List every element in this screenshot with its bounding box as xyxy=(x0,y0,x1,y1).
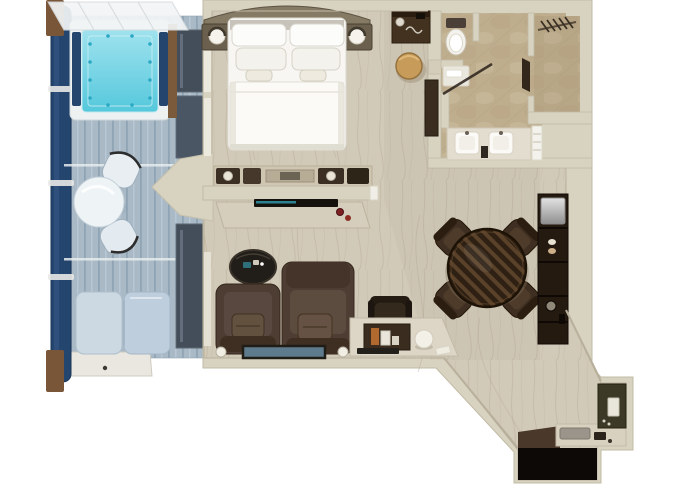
coffee-table-top xyxy=(230,250,276,284)
armchair-headrest xyxy=(286,262,350,288)
oval-coffee-table xyxy=(230,250,276,284)
table-decor-box xyxy=(243,262,251,268)
desk-blotter xyxy=(357,348,399,354)
minibar xyxy=(541,198,565,224)
window-frame xyxy=(180,34,183,88)
glassware xyxy=(548,248,556,254)
pillow xyxy=(236,48,286,70)
armchair-right xyxy=(282,262,354,354)
panel-detail xyxy=(608,423,611,426)
duvet-hem xyxy=(230,144,344,150)
faucet-right xyxy=(499,131,503,135)
toilet-nook-side-wall xyxy=(473,13,479,41)
closet-door xyxy=(522,58,530,92)
dresser-box xyxy=(347,168,369,184)
duvet-drape xyxy=(230,82,236,150)
decor-bowl xyxy=(327,172,336,181)
vanity-dish xyxy=(396,18,404,26)
dresser-box xyxy=(243,168,261,184)
divider-wall xyxy=(203,186,378,200)
toilet-seat xyxy=(450,34,463,52)
rolled-towel xyxy=(446,70,462,77)
panel-detail xyxy=(603,420,606,423)
decor-red-bowl xyxy=(337,209,344,216)
cabinet-accessory xyxy=(559,314,565,324)
closet-bottom-wall xyxy=(528,112,592,124)
glassware xyxy=(548,239,556,245)
curtain xyxy=(204,252,211,346)
hot-tub-water xyxy=(82,30,158,112)
toilet xyxy=(446,18,466,55)
accent-pillow xyxy=(300,70,326,81)
towel-shelf xyxy=(532,126,542,160)
railing-post-bottom xyxy=(46,350,64,392)
deck-fitting xyxy=(103,366,107,370)
hot-tub xyxy=(70,20,177,120)
corridor-tall-cabinet xyxy=(425,80,438,136)
king-bed xyxy=(228,18,346,150)
duvet-drape xyxy=(338,82,344,150)
railing-bracket xyxy=(48,274,74,280)
floor-lamp xyxy=(338,347,348,357)
accent-pillow xyxy=(246,70,272,81)
ice-bucket xyxy=(546,301,556,311)
remote-tray xyxy=(280,172,300,180)
bedroom-window xyxy=(176,96,204,158)
light-switch xyxy=(608,398,619,416)
bar-cabinet xyxy=(538,194,568,344)
divider-wall-endcap xyxy=(370,186,378,200)
hot-tub-wood-trim xyxy=(168,24,177,118)
table-decor-card xyxy=(253,260,259,265)
decor-bowl xyxy=(224,172,233,181)
glass-canopy xyxy=(48,2,188,30)
floor-lamp xyxy=(216,347,226,357)
canopy-glass xyxy=(48,2,188,30)
deck-end-board xyxy=(58,352,152,376)
book xyxy=(371,328,379,345)
double-sink-vanity xyxy=(447,126,542,160)
hot-tub-side-panel xyxy=(72,32,81,106)
bathroom-block xyxy=(425,11,592,168)
table-decor-dot xyxy=(260,262,264,266)
toilet-tank xyxy=(446,18,466,28)
closet-left-wall-upper xyxy=(528,13,534,56)
hot-tub-side-panel xyxy=(159,32,168,106)
deck-divider-rail xyxy=(64,258,176,261)
curtain xyxy=(204,98,211,156)
pillow xyxy=(232,24,286,46)
tv-console xyxy=(216,199,370,228)
sink-left-basin xyxy=(459,136,475,150)
decor-red-bowl-small xyxy=(345,215,351,221)
faucet-left xyxy=(465,131,469,135)
railing-highlight xyxy=(54,12,59,376)
book xyxy=(381,331,390,345)
pillow xyxy=(290,24,344,46)
vanity-accessory xyxy=(481,146,488,158)
floor-plan-rendering xyxy=(0,0,680,486)
floor-plan-canvas xyxy=(0,0,680,486)
entry-door-area xyxy=(518,448,597,480)
wall-artwork xyxy=(243,346,325,358)
shoe-tray xyxy=(594,432,606,440)
window-frame xyxy=(180,230,183,342)
lounger-cushion-right xyxy=(124,292,170,354)
dining-set xyxy=(430,214,543,322)
desk-sphere-lamp xyxy=(415,330,433,348)
railing-bracket xyxy=(48,180,74,186)
armchair-left xyxy=(216,284,280,354)
lounger-cushion-left xyxy=(76,292,122,354)
shoes xyxy=(608,439,612,443)
tv-screen-glint xyxy=(256,201,296,204)
book xyxy=(392,336,399,345)
shower-side-wall xyxy=(441,92,449,128)
pillow xyxy=(292,48,340,70)
door-mat xyxy=(560,428,590,439)
closet-floor-shade xyxy=(534,16,580,116)
bistro-table xyxy=(74,177,124,227)
hair-dryer xyxy=(416,13,425,19)
sink-right-basin xyxy=(493,136,509,150)
dresser xyxy=(214,166,372,186)
